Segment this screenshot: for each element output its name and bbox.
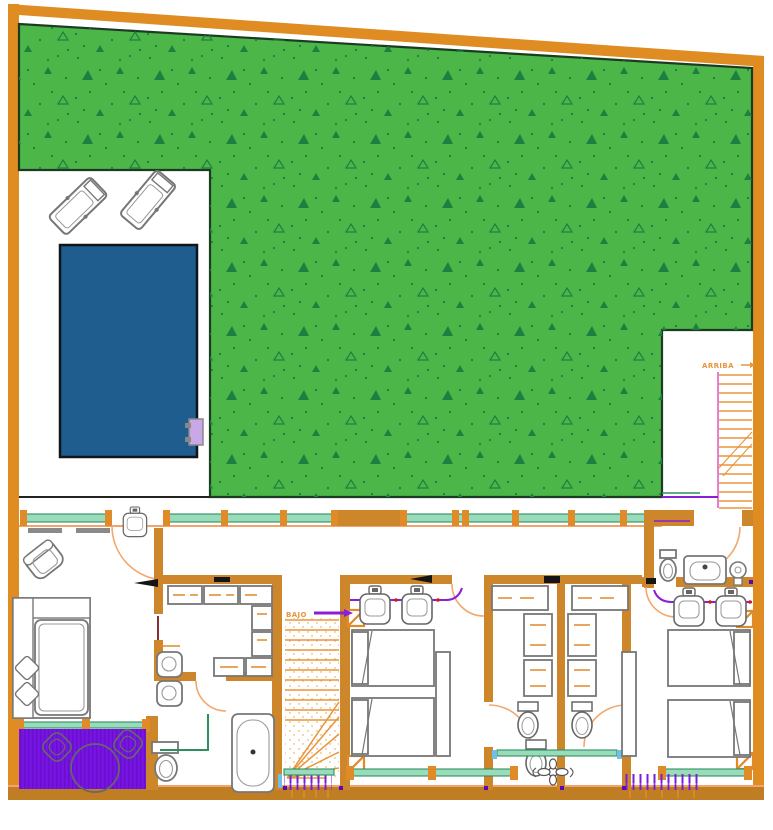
sliding-door-marker (134, 579, 158, 587)
door-swing (196, 681, 226, 711)
valve-dot (748, 600, 752, 604)
window-post (744, 766, 752, 780)
window-post (221, 510, 228, 526)
washbasin (157, 681, 182, 706)
sliding-door-marker (214, 577, 230, 582)
door-swing (452, 584, 484, 616)
interior-wall (742, 510, 753, 526)
armchair (22, 539, 66, 582)
pillow (352, 632, 368, 684)
window-post (620, 510, 627, 526)
window-post (452, 510, 459, 526)
radiator (622, 774, 702, 790)
joint-dot (560, 786, 564, 790)
valve-dot (394, 598, 398, 602)
sliding-door-marker (544, 576, 560, 583)
shelving-column (524, 614, 552, 696)
washbasin (402, 586, 432, 624)
window (24, 514, 108, 522)
joint-dot (749, 580, 753, 584)
window (167, 514, 334, 522)
valve-dot (708, 600, 712, 604)
single-bed (668, 630, 750, 686)
double-bed (13, 598, 90, 718)
shelving-column (568, 614, 596, 696)
interior-wall (154, 528, 163, 578)
washbasin (360, 586, 390, 624)
wardrobe (572, 586, 628, 610)
window-post (400, 510, 407, 526)
boundary-wall-right (753, 58, 764, 800)
closet-shelving (252, 632, 272, 656)
window-sill (76, 528, 110, 533)
sliding-door-marker (646, 578, 656, 584)
interior-wall (154, 584, 163, 614)
joint-dot (622, 786, 626, 790)
floor-plan-page: ARRIBA (0, 0, 773, 830)
wardrobe (436, 652, 450, 756)
toilet (572, 702, 592, 738)
toilet (518, 702, 538, 738)
washbasin (123, 507, 146, 537)
joint-dot (484, 786, 488, 790)
stair-texture (285, 618, 339, 778)
window-post (568, 510, 575, 526)
accent-tick (278, 774, 282, 788)
window (404, 514, 648, 522)
wardrobe (492, 586, 548, 610)
walk-in-closet (168, 586, 272, 676)
window-post (346, 766, 354, 780)
window-post (105, 510, 112, 526)
window-post (512, 510, 519, 526)
interior-wall (644, 510, 654, 588)
terrace-deck-stripes (19, 729, 146, 789)
stairs-down-label: BAJO (286, 611, 307, 619)
staircase-up: ARRIBA (662, 362, 755, 508)
radiator (284, 774, 332, 790)
single-bed (352, 698, 434, 756)
bedroom-3 (622, 587, 752, 798)
window (284, 769, 334, 775)
single-bed (668, 700, 750, 757)
window (497, 750, 617, 756)
master-terrace (16, 719, 150, 792)
window-post (510, 766, 518, 780)
window-post (20, 510, 27, 526)
wardrobe (622, 652, 636, 756)
interior-wall (557, 584, 565, 790)
swimming-pool (60, 245, 197, 457)
sun-lounger (118, 168, 178, 232)
interior-wall (648, 510, 694, 526)
window-post (462, 510, 469, 526)
master-bedroom (13, 539, 90, 718)
window-post (428, 766, 436, 780)
interior-wall (350, 575, 452, 584)
joint-dot (283, 786, 287, 790)
window-post (163, 510, 170, 526)
toilet (660, 550, 676, 581)
window-sill (28, 528, 62, 533)
vanity-sink (684, 556, 726, 584)
floor-plan-canvas: ARRIBA (0, 0, 773, 830)
sun-lounger (47, 175, 110, 237)
accent-tick (492, 750, 497, 759)
pillow (352, 700, 368, 754)
pillow (734, 632, 750, 684)
interior-wall (484, 575, 642, 584)
washbasin (157, 652, 182, 677)
stairs-up-treads (719, 375, 752, 508)
pool-patio (47, 168, 203, 457)
window-post (331, 510, 338, 526)
bathroom-top-right (660, 527, 746, 585)
bathtub (232, 714, 274, 792)
closet-shelving (252, 606, 272, 630)
window-post (280, 510, 287, 526)
joint-dot (339, 786, 343, 790)
toilet (152, 742, 178, 781)
pillow (734, 702, 750, 755)
washbasin (674, 588, 704, 626)
interior-wall (336, 510, 402, 526)
washbasin (716, 588, 746, 626)
stairs-up-label: ARRIBA (702, 362, 734, 370)
valve-dot (436, 598, 440, 602)
single-bed (352, 630, 434, 686)
